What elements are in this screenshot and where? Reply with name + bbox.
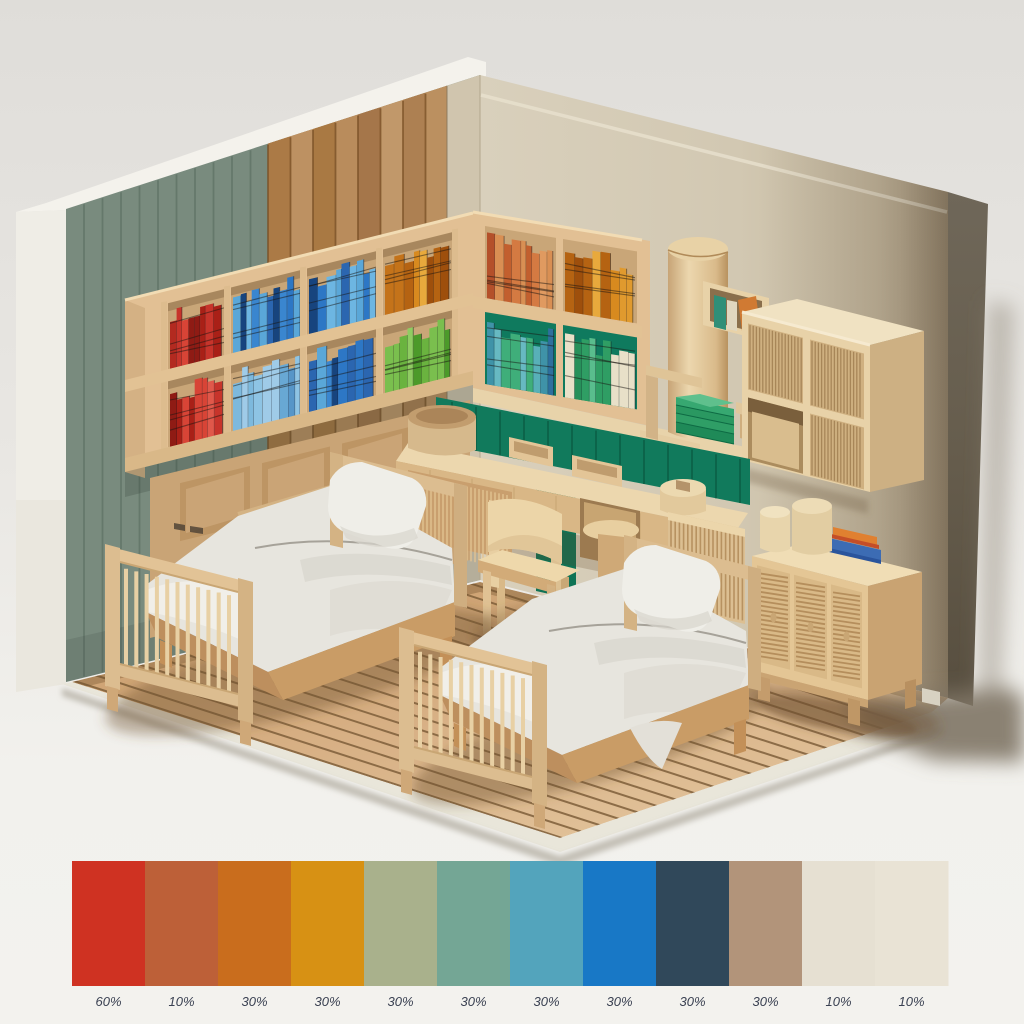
svg-text:30%: 30% xyxy=(460,994,486,1009)
svg-text:30%: 30% xyxy=(679,994,705,1009)
svg-text:10%: 10% xyxy=(168,994,194,1009)
svg-text:60%: 60% xyxy=(95,994,121,1009)
svg-text:30%: 30% xyxy=(241,994,267,1009)
svg-text:30%: 30% xyxy=(314,994,340,1009)
svg-text:30%: 30% xyxy=(752,994,778,1009)
svg-text:30%: 30% xyxy=(533,994,559,1009)
svg-text:30%: 30% xyxy=(606,994,632,1009)
svg-text:10%: 10% xyxy=(825,994,851,1009)
svg-text:10%: 10% xyxy=(898,994,924,1009)
svg-text:30%: 30% xyxy=(387,994,413,1009)
